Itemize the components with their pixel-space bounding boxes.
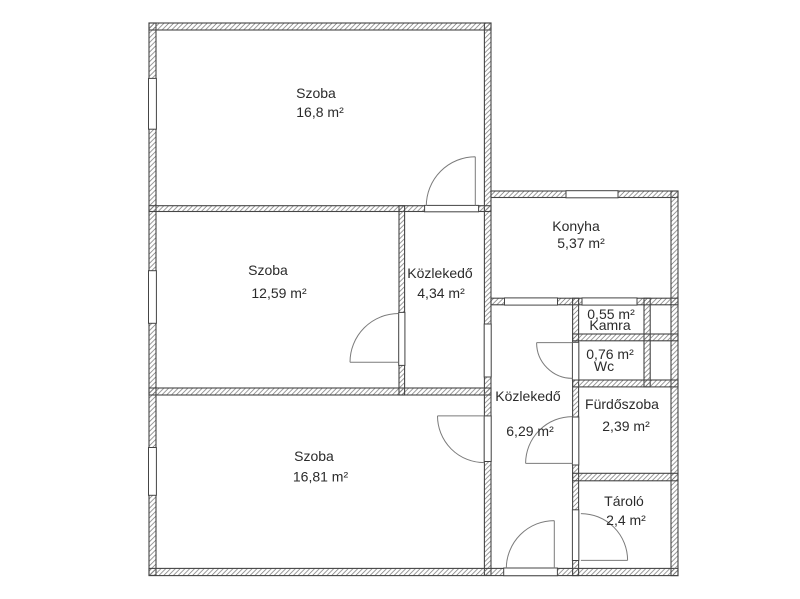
svg-text:6,29 m²: 6,29 m²	[506, 423, 554, 439]
svg-text:Konyha: Konyha	[552, 218, 600, 234]
svg-text:Kamra: Kamra	[589, 317, 630, 333]
svg-text:Tároló: Tároló	[604, 493, 644, 509]
svg-text:Közlekedő: Közlekedő	[495, 388, 561, 404]
svg-text:Szoba: Szoba	[294, 448, 334, 464]
svg-text:Fürdőszoba: Fürdőszoba	[585, 396, 659, 412]
svg-text:Közlekedő: Közlekedő	[407, 265, 473, 281]
svg-text:12,59 m²: 12,59 m²	[251, 285, 307, 301]
svg-text:16,8 m²: 16,8 m²	[296, 104, 344, 120]
svg-text:2,39 m²: 2,39 m²	[602, 418, 650, 434]
svg-text:Szoba: Szoba	[248, 262, 288, 278]
svg-text:16,81 m²: 16,81 m²	[293, 469, 349, 485]
svg-text:Szoba: Szoba	[296, 85, 336, 101]
svg-text:4,34 m²: 4,34 m²	[417, 285, 465, 301]
svg-text:2,4 m²: 2,4 m²	[606, 512, 646, 528]
svg-text:Wc: Wc	[594, 358, 614, 374]
svg-text:5,37 m²: 5,37 m²	[557, 235, 605, 251]
